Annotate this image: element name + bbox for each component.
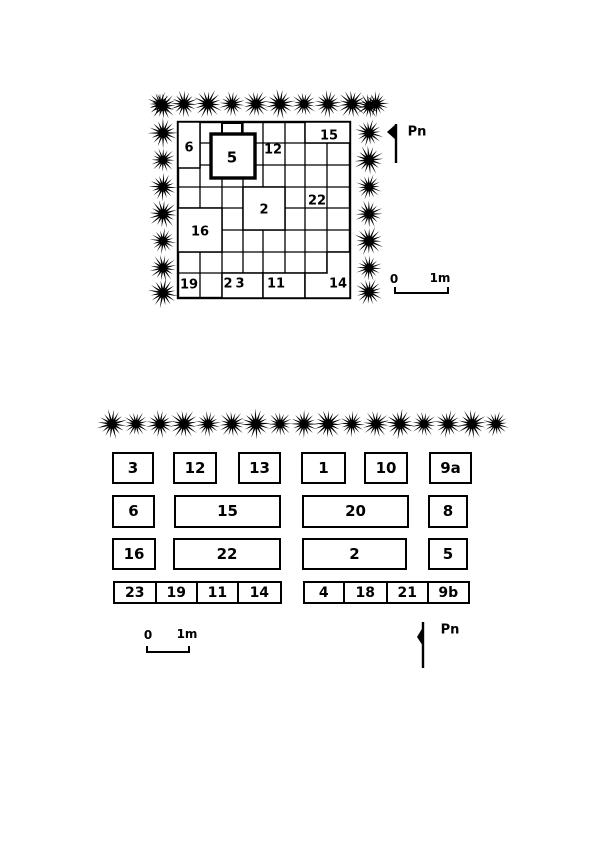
strip-cell: 4 [305,583,343,602]
plant-icon [314,410,341,437]
strip-cell: 11 [196,583,237,602]
bed-box: 6 [112,495,155,528]
plant-icon [151,94,176,119]
bed-box: 20 [302,495,409,528]
plant-icon [265,89,295,119]
plant-icon [412,412,436,436]
grid-cell-label: 11 [267,278,285,291]
scale-one-meter-lower: 1m [177,628,198,640]
plant-icon [385,409,416,440]
bed-box: 12 [173,452,217,484]
plant-icon [356,174,381,199]
plant-icon [314,90,343,119]
bed-box: 15 [174,495,281,528]
bed-strip-right: 4 18 21 9b [303,581,470,604]
plant-icon [290,410,319,439]
scale-one-meter-upper: 1m [430,272,451,284]
plant-icon [483,411,509,437]
plant-icon [244,92,269,117]
scale-bar-lower [147,646,189,652]
plant-icon [97,409,127,439]
grid-cell-label: 5 [227,151,237,166]
grid-cell-label: 12 [264,144,282,157]
strip-cell: 18 [343,583,386,602]
plant-icon [356,279,382,305]
plant-icon [125,413,148,436]
bed-box: 13 [238,452,281,484]
strip-cell: 23 [115,583,155,602]
scale-zero-lower: 0 [144,629,152,641]
grid-cell-label: 6 [184,142,193,155]
strip-cell: 14 [237,583,280,602]
plant-icon [355,227,383,255]
plant-icon [241,409,272,440]
plant-icon [151,148,174,171]
scale-zero-upper: 0 [390,273,398,285]
plant-icon [458,410,487,439]
bed-box: 3 [112,452,154,484]
plant-icon [150,228,177,255]
bed-box: 5 [428,538,468,570]
plant-icon [146,410,174,438]
plant-icon [434,410,462,438]
plan-graphics [0,0,612,867]
plant-icon [356,255,381,280]
scanned-figure-page: 6 5 12 15 2 22 16 19 23 11 14 Pn 0 1m 3 … [0,0,612,867]
bed-strip-left: 23 19 11 14 [113,581,282,604]
plant-icon [219,91,245,117]
bed-box: 22 [173,538,281,570]
plant-icon [339,411,366,438]
north-flag-icon [417,627,423,646]
strip-cell: 9b [427,583,468,602]
plant-icon [195,411,222,438]
plant-icon [171,411,198,438]
plant-icon [355,146,384,175]
grid-cell-label: 16 [191,226,209,239]
plant-icon [356,201,383,228]
plant-icon [171,91,198,118]
plant-icon [150,255,176,281]
plant-icon [220,412,245,437]
plant-icon [363,411,389,437]
scale-bar-upper [395,287,448,293]
plant-icon [194,90,222,118]
plant-icon [355,119,383,147]
plant-icon [293,93,316,116]
north-indicator-upper [387,124,396,163]
grid-cell-label: 19 [180,279,198,292]
grid-cell-label: 15 [320,130,338,143]
bed-box: 9a [429,452,472,484]
strip-cell: 21 [386,583,427,602]
north-flag-icon [387,124,396,140]
bed-box: 10 [364,452,408,484]
grid-cell-label: 22 [308,195,326,208]
north-label-lower: Pn [441,624,460,637]
bed-box: 1 [301,452,346,484]
plant-icon [268,412,291,435]
north-label-upper: Pn [408,126,427,139]
plant-icon [148,118,179,149]
bed-box: 2 [302,538,407,570]
north-indicator-lower [417,622,423,668]
plant-icon [148,278,178,308]
strip-cell: 19 [155,583,197,602]
bed-box: 16 [112,538,156,570]
plant-icon [149,173,178,202]
bed-box: 8 [428,495,468,528]
plant-icon [149,200,177,228]
grid-cell-label: 14 [329,278,347,291]
grid-cell-label: 2 [259,204,268,217]
grid-cell-label: 23 [220,278,247,291]
